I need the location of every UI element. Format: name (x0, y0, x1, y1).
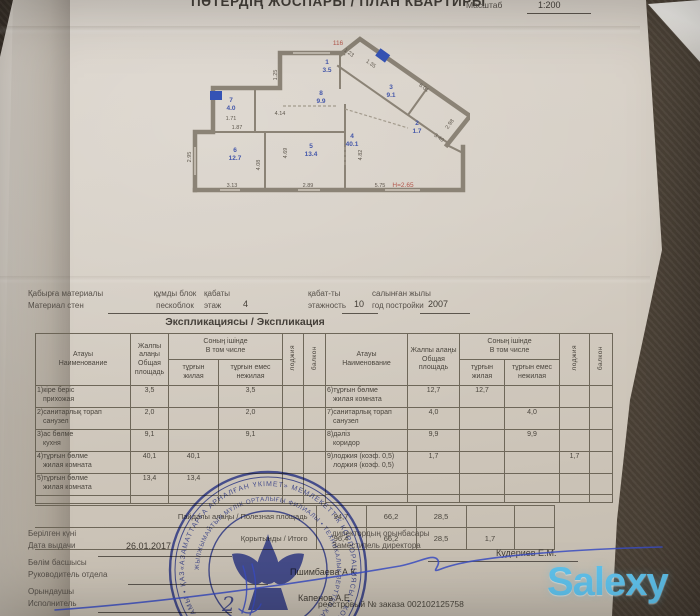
photo-background: ПӘТЕРДІҢ ЖОСПАРЫ / ПЛАН КВАРТИРЫ Масштаб… (0, 0, 700, 616)
salexy-watermark: Salexy (547, 560, 668, 605)
signatures (0, 0, 700, 616)
